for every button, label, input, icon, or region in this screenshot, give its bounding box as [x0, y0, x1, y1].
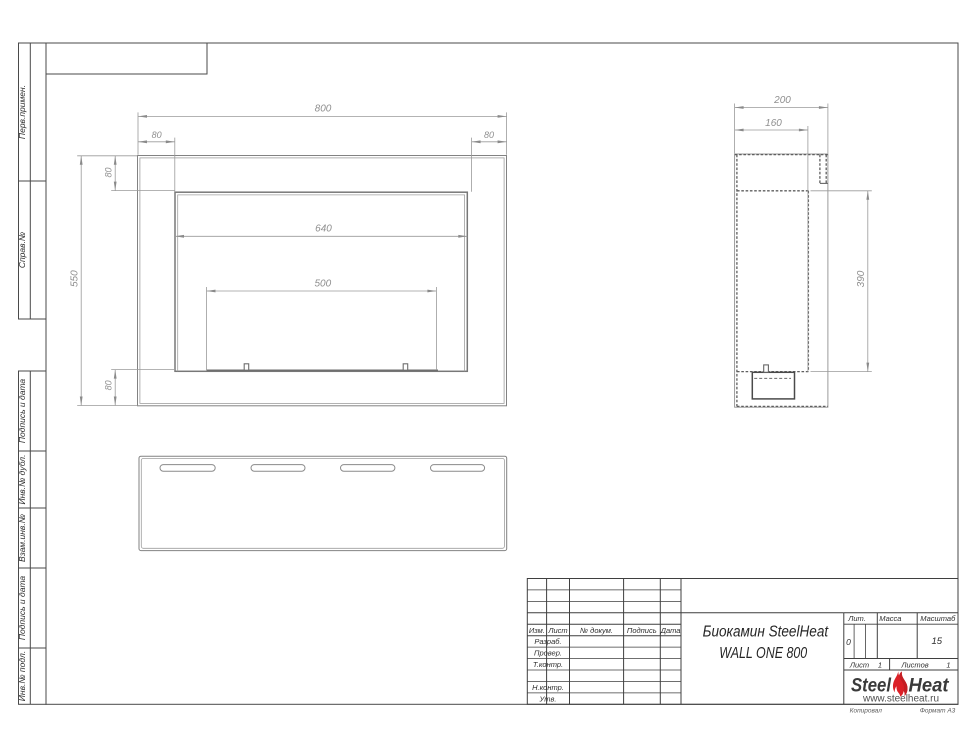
svg-text:Подпись и дата: Подпись и дата [17, 576, 27, 641]
svg-text:160: 160 [765, 118, 782, 129]
svg-text:80: 80 [104, 380, 114, 390]
svg-text:Подпись и дата: Подпись и дата [17, 379, 27, 444]
svg-text:Справ.№: Справ.№ [17, 232, 27, 268]
svg-text:Формат А3: Формат А3 [920, 708, 956, 715]
svg-text:1: 1 [946, 660, 950, 669]
svg-text:200: 200 [773, 95, 791, 106]
svg-text:Масса: Масса [879, 614, 901, 623]
svg-text:Провер.: Провер. [534, 649, 562, 658]
svg-text:500: 500 [314, 278, 331, 289]
svg-text:80: 80 [484, 130, 494, 140]
svg-text:800: 800 [315, 104, 332, 115]
svg-text:Масштаб: Масштаб [920, 614, 956, 623]
svg-text:Подпись: Подпись [627, 626, 657, 635]
svg-text:80: 80 [152, 130, 162, 140]
svg-text:Лит.: Лит. [847, 614, 866, 623]
svg-text:80: 80 [104, 167, 114, 177]
svg-text:Утв.: Утв. [538, 694, 556, 703]
svg-text:Лист: Лист [849, 660, 869, 669]
svg-text:390: 390 [856, 270, 867, 287]
svg-text:Инв.№ подл.: Инв.№ подл. [17, 651, 27, 701]
svg-text:№ докум.: № докум. [580, 626, 613, 635]
svg-text:Изм.: Изм. [529, 626, 545, 635]
svg-text:Инв.№ дубл.: Инв.№ дубл. [17, 455, 27, 505]
svg-text:Перв.примен.: Перв.примен. [17, 85, 27, 139]
svg-text:Копировал: Копировал [850, 708, 883, 715]
svg-text:WALL ONE 800: WALL ONE 800 [719, 645, 807, 662]
svg-text:Взам.инв.№: Взам.инв.№ [17, 514, 27, 562]
svg-text:Дата: Дата [660, 626, 681, 635]
svg-text:1: 1 [878, 660, 882, 669]
svg-text:550: 550 [70, 270, 81, 287]
svg-text:Т.контр.: Т.контр. [533, 660, 563, 669]
svg-text:Н.контр.: Н.контр. [532, 683, 564, 692]
svg-text:640: 640 [315, 224, 332, 235]
svg-text:Разраб.: Разраб. [534, 637, 561, 646]
svg-text:Лист: Лист [547, 626, 567, 635]
svg-text:0: 0 [846, 637, 851, 647]
svg-text:www.steelheat.ru: www.steelheat.ru [862, 693, 939, 704]
svg-text:15: 15 [932, 636, 943, 647]
svg-text:Биокамин SteelHeat: Биокамин SteelHeat [703, 623, 829, 640]
svg-text:Листов: Листов [900, 660, 928, 669]
